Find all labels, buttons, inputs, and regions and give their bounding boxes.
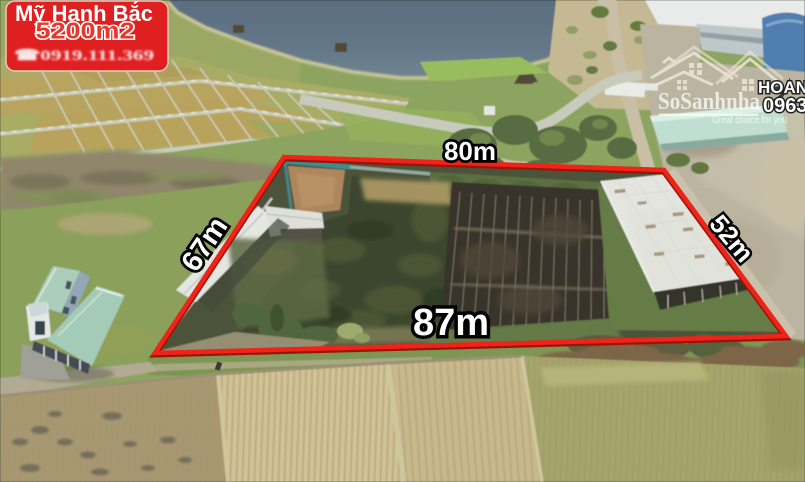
svg-text:80m: 80m [444, 136, 496, 166]
svg-text:87m: 87m [413, 302, 489, 344]
svg-text:SoSanhnha: SoSanhnha [658, 89, 760, 115]
svg-text:5200m2: 5200m2 [36, 18, 135, 44]
svg-text:☎0919.111.369: ☎0919.111.369 [14, 48, 154, 64]
svg-text:0963.: 0963. [763, 95, 805, 117]
